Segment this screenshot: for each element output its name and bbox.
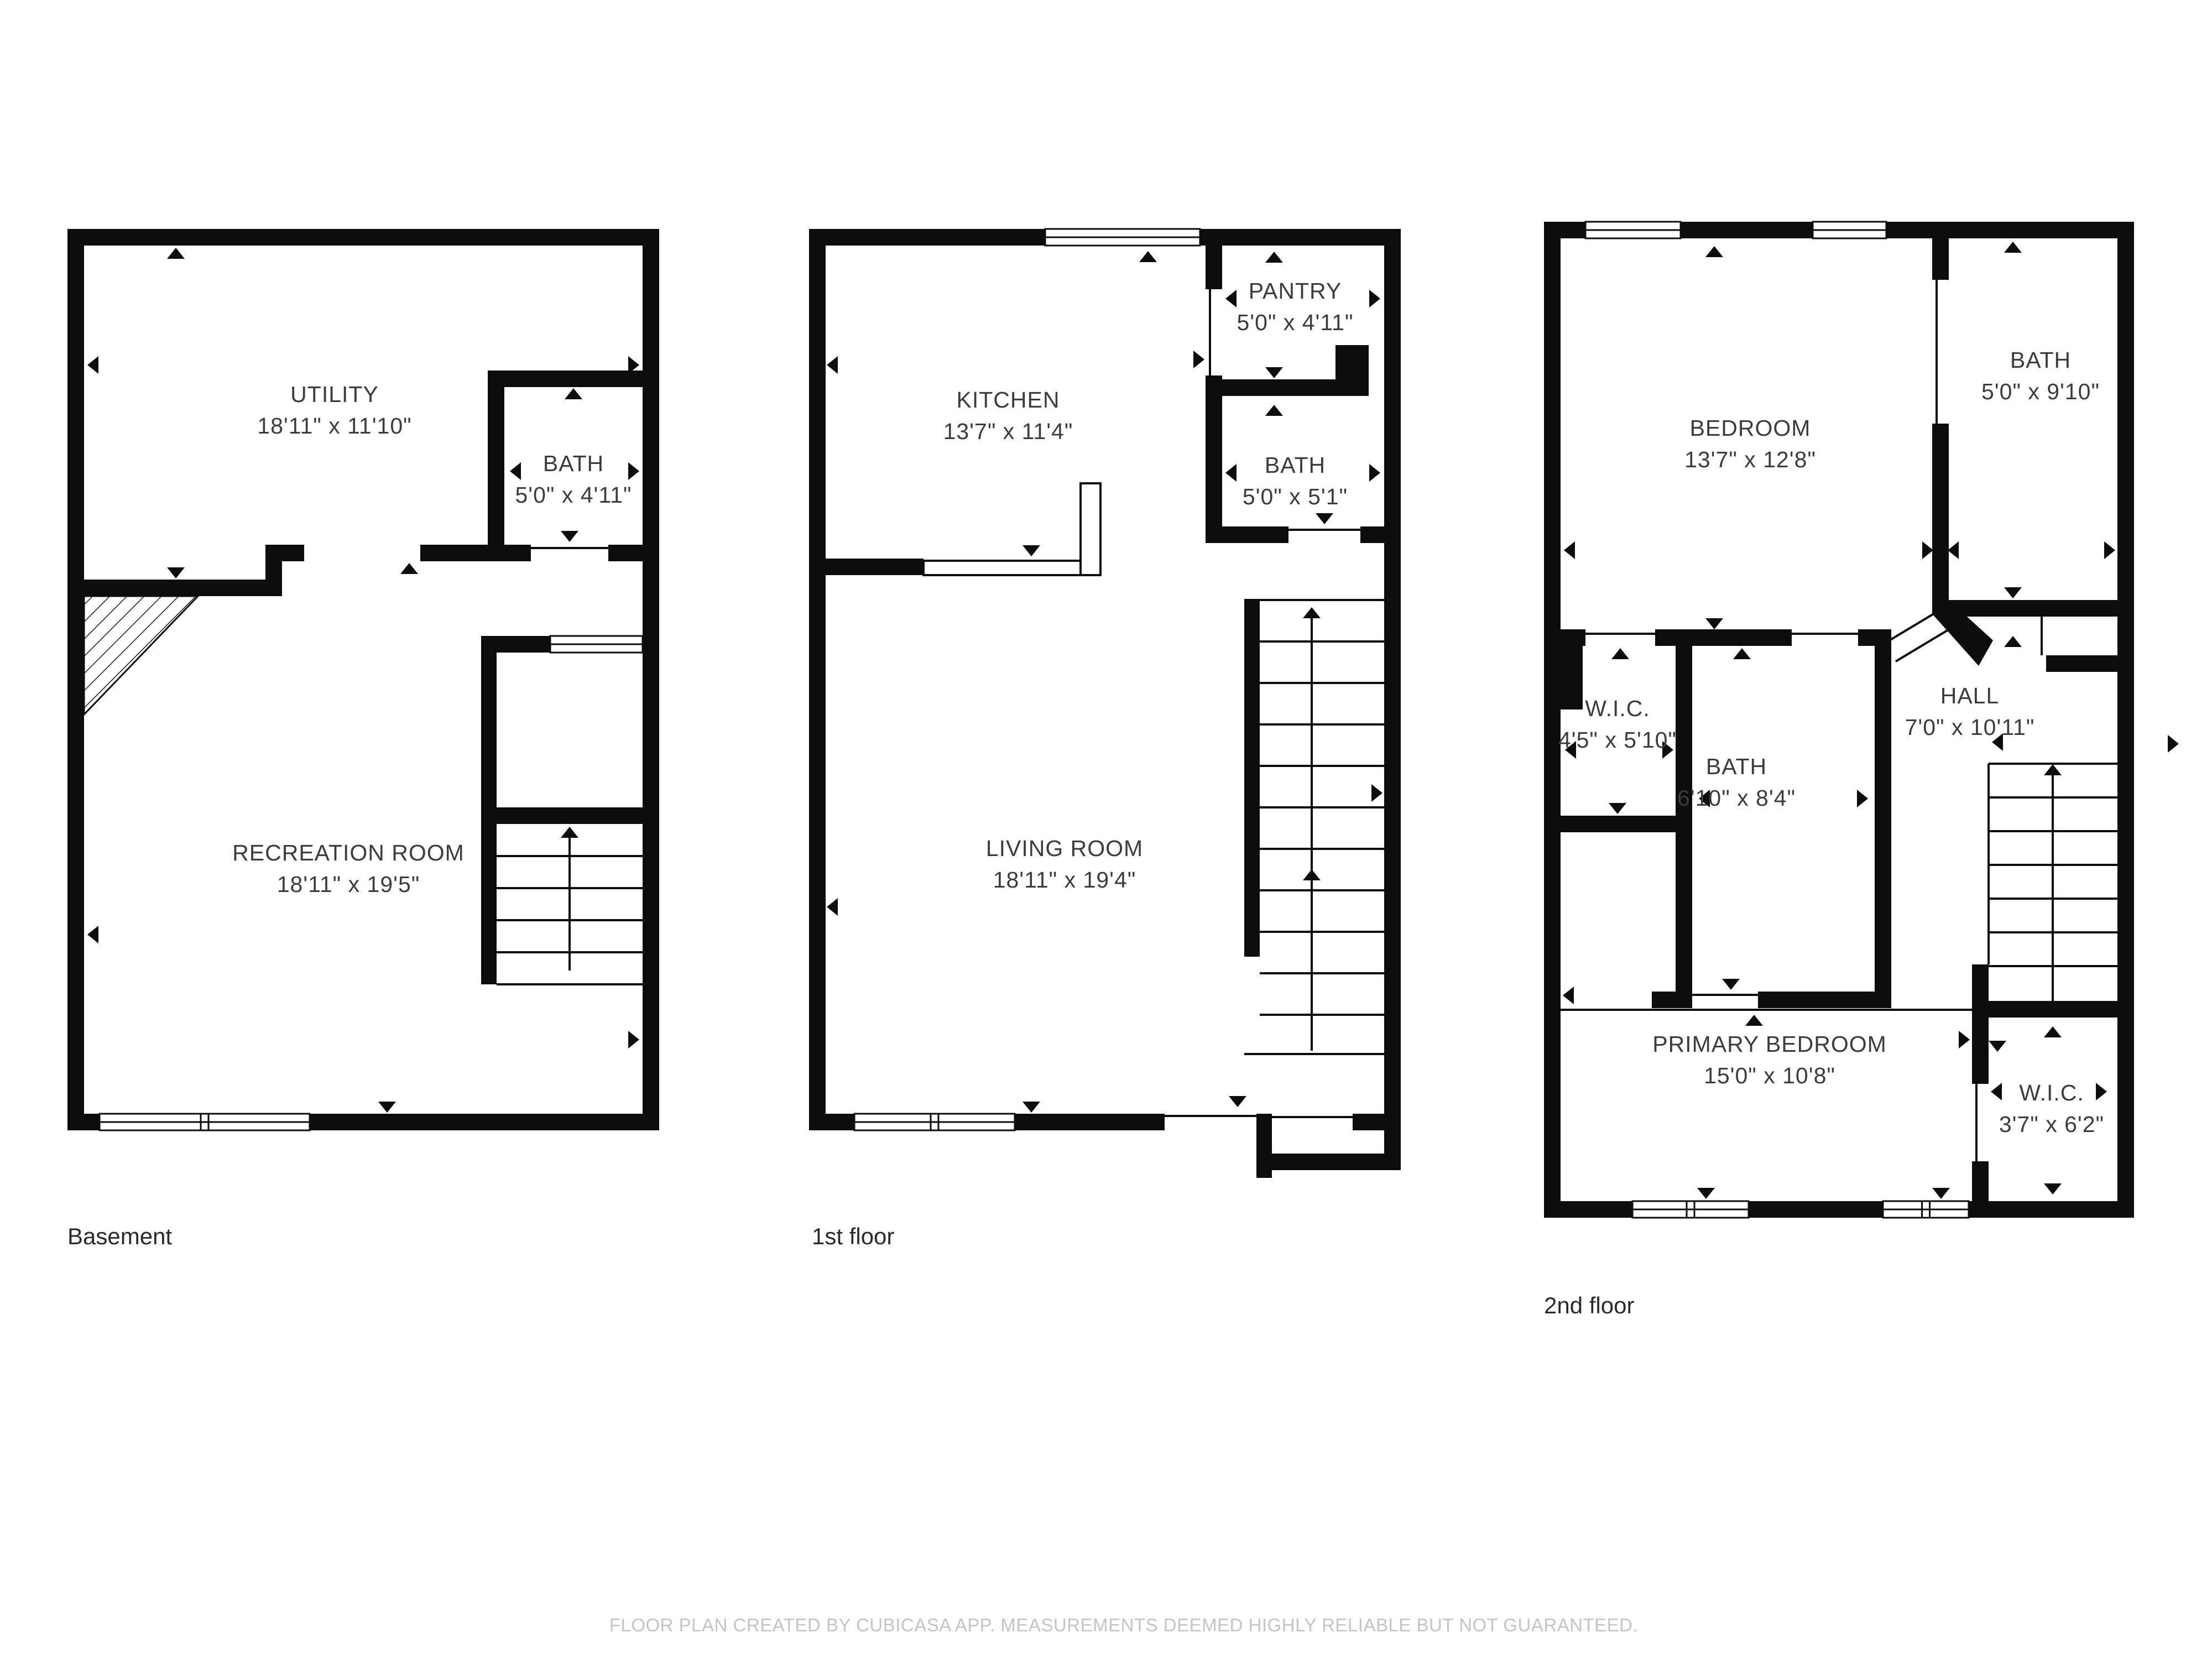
- floor-plan-image: UTILITY 18'11" x 11'10" BATH 5'0" x 4'11…: [0, 0, 2212, 1659]
- floor-label-second: 2nd floor: [1544, 1292, 1634, 1318]
- kitchen-counter: [1081, 483, 1100, 575]
- triangle-marker-r: [628, 1031, 639, 1048]
- triangle-marker-d: [167, 567, 185, 578]
- triangle-marker-r: [1959, 1031, 1970, 1048]
- triangle-marker-u: [2044, 764, 2062, 775]
- floor-plan-page: UTILITY 18'11" x 11'10" BATH 5'0" x 4'11…: [0, 0, 2212, 1659]
- floor-label-first: 1st floor: [812, 1223, 894, 1249]
- room-label-recreation: RECREATION ROOM: [232, 840, 465, 865]
- triangle-marker-l: [827, 898, 838, 916]
- floor-label-basement: Basement: [67, 1223, 172, 1249]
- triangle-marker-l: [1564, 541, 1575, 559]
- triangle-marker-d: [561, 531, 578, 542]
- triangle-marker-d: [1705, 618, 1723, 629]
- triangle-marker-r: [628, 462, 639, 480]
- room-dims-kitchen: 13'7" x 11'4": [943, 419, 1073, 444]
- room-label-living-room: LIVING ROOM: [986, 836, 1143, 861]
- triangle-marker-r: [2104, 541, 2115, 559]
- room-label-upper-bath: BATH: [2010, 347, 2071, 373]
- triangle-marker-u: [1265, 252, 1283, 263]
- triangle-marker-u: [1265, 405, 1283, 416]
- room-label-utility: UTILITY: [290, 382, 379, 407]
- room-dims-middle-bath: 6'10" x 8'4": [1677, 785, 1796, 811]
- room-dims-upper-bath: 5'0" x 9'10": [1981, 379, 2100, 404]
- room-dims-first-bath: 5'0" x 5'1": [1243, 484, 1348, 509]
- kitchen-counter: [924, 561, 1100, 575]
- triangle-marker-l: [1563, 987, 1574, 1004]
- triangle-marker-d: [1316, 513, 1333, 524]
- room-dims-utility: 18'11" x 11'10": [257, 413, 411, 439]
- triangle-marker-l: [1225, 464, 1237, 482]
- triangle-marker-r: [1193, 351, 1204, 368]
- room-label-hall: HALL: [1940, 683, 2000, 708]
- triangle-marker-l: [87, 926, 98, 943]
- triangle-marker-l: [1991, 1083, 2002, 1100]
- second-floor-room-labels: BEDROOM 13'7" x 12'8" BATH 5'0" x 9'10" …: [1558, 347, 2104, 1137]
- room-label-bedroom: BEDROOM: [1690, 415, 1811, 441]
- room-label-primary-bedroom: PRIMARY BEDROOM: [1652, 1031, 1887, 1057]
- triangle-marker-u: [2004, 636, 2022, 647]
- room-dims-living-room: 18'11" x 19'4": [993, 867, 1136, 893]
- room-label-wic-1: W.I.C.: [1585, 696, 1650, 721]
- stairs-and-door-lines: [497, 548, 643, 984]
- triangle-marker-l: [827, 356, 838, 374]
- triangle-marker-u: [561, 827, 578, 838]
- room-dims-bedroom: 13'7" x 12'8": [1684, 447, 1816, 472]
- triangle-marker-u: [1745, 1015, 1763, 1026]
- triangle-marker-d: [1609, 803, 1626, 814]
- triangle-marker-u: [1705, 246, 1723, 257]
- triangle-marker-d: [1989, 1041, 2006, 1052]
- triangle-marker-l: [1225, 290, 1237, 307]
- room-label-wic-2: W.I.C.: [2019, 1080, 2084, 1105]
- room-dims-hall: 7'0" x 10'11": [1905, 714, 2035, 740]
- triangle-marker-u: [1139, 251, 1157, 262]
- triangle-marker-r: [2096, 1083, 2107, 1100]
- triangle-marker-u: [1303, 869, 1321, 880]
- walls: [67, 229, 659, 1130]
- triangle-marker-r: [1857, 790, 1868, 807]
- triangle-marker-d: [1022, 545, 1040, 556]
- triangle-marker-d: [1722, 979, 1740, 990]
- triangle-marker-r: [1369, 290, 1380, 307]
- triangle-marker-u: [167, 248, 185, 259]
- triangle-marker-u: [1611, 648, 1629, 659]
- triangle-marker-d: [2044, 1183, 2062, 1194]
- triangle-marker-d: [1697, 1188, 1715, 1199]
- triangle-marker-d: [378, 1102, 396, 1113]
- triangle-marker-d: [1265, 367, 1283, 378]
- triangle-marker-u: [1303, 607, 1321, 618]
- triangle-marker-d: [1022, 1102, 1040, 1113]
- triangle-marker-r: [1371, 784, 1383, 802]
- triangle-marker-u: [1733, 648, 1751, 659]
- triangle-marker-r: [1922, 541, 1933, 559]
- triangle-marker-d: [2004, 587, 2022, 598]
- triangle-marker-r: [2168, 735, 2179, 753]
- room-dims-pantry: 5'0" x 4'11": [1237, 310, 1353, 335]
- triangle-marker-r: [1369, 464, 1380, 482]
- windows: [854, 229, 1200, 1130]
- room-dims-wic-2: 3'7" x 6'2": [1999, 1112, 2104, 1137]
- first-floor-plan: [809, 229, 1401, 1178]
- room-label-pantry: PANTRY: [1249, 278, 1342, 304]
- room-dims-primary-bedroom: 15'0" x 10'8": [1704, 1063, 1835, 1088]
- basement-plan: [67, 229, 659, 1130]
- triangle-marker-u: [2004, 242, 2022, 253]
- triangle-marker-l: [1948, 541, 1959, 559]
- room-label-first-bath: BATH: [1265, 452, 1326, 478]
- triangle-marker-u: [400, 563, 418, 574]
- triangle-marker-d: [1229, 1096, 1246, 1107]
- room-label-kitchen: KITCHEN: [957, 387, 1060, 413]
- room-label-basement-bath: BATH: [543, 451, 604, 476]
- triangle-marker-l: [87, 356, 98, 374]
- room-dims-basement-bath: 5'0" x 4'11": [515, 482, 632, 508]
- room-dims-recreation: 18'11" x 19'5": [277, 872, 420, 897]
- room-label-middle-bath: BATH: [1706, 754, 1767, 779]
- triangle-marker-d: [1932, 1188, 1950, 1199]
- under-stair-hatch: [84, 596, 198, 714]
- first-floor-room-labels: KITCHEN 13'7" x 11'4" PANTRY 5'0" x 4'11…: [943, 278, 1354, 893]
- footer-disclaimer: FLOOR PLAN CREATED BY CUBICASA APP. MEAS…: [609, 1615, 1638, 1635]
- triangle-marker-l: [510, 462, 521, 480]
- triangle-marker-u: [565, 388, 582, 399]
- triangle-marker-u: [2044, 1026, 2062, 1037]
- room-dims-wic-1: 4'5" x 5'10": [1558, 727, 1677, 753]
